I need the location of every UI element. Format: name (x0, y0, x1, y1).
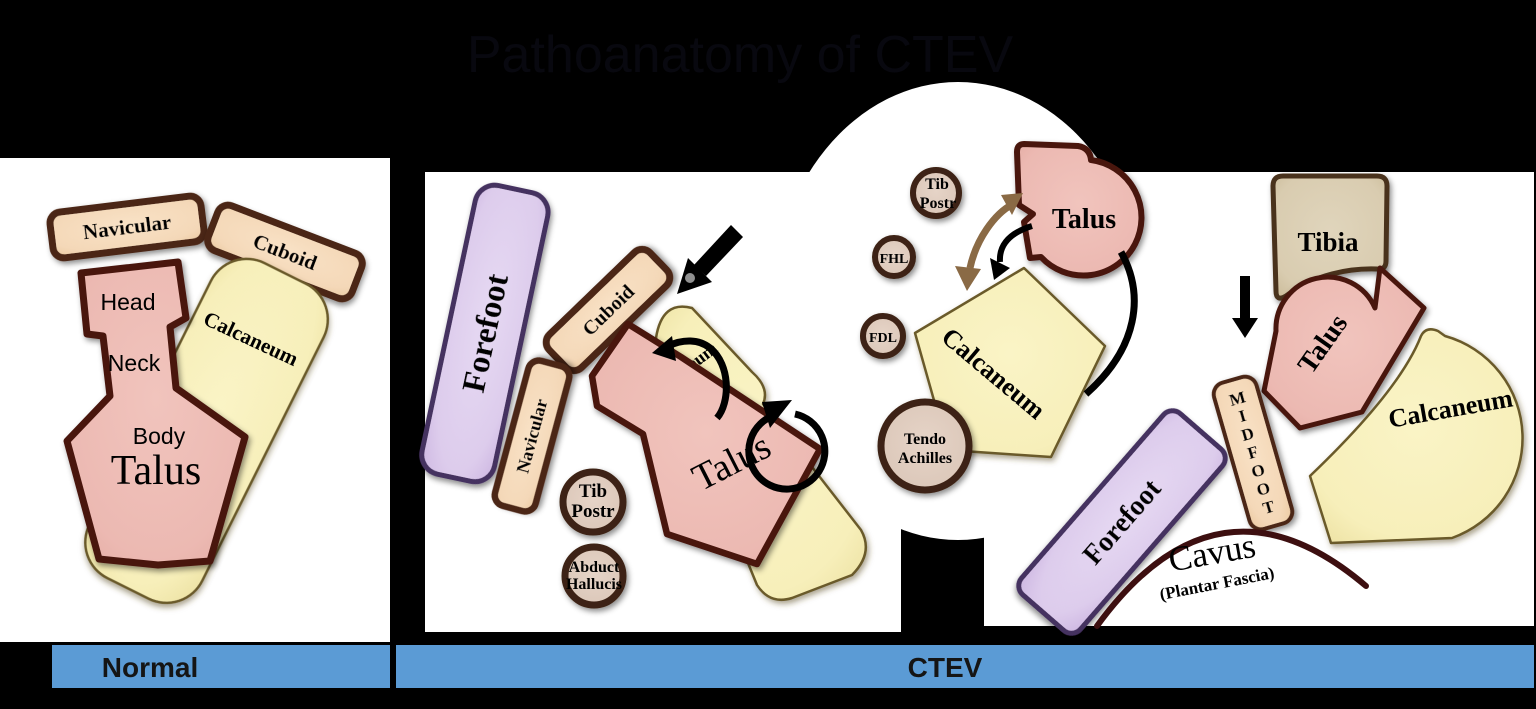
svg-text:Postr: Postr (920, 195, 956, 212)
svg-text:Tib: Tib (579, 481, 607, 502)
svg-text:Hallucis: Hallucis (566, 576, 622, 593)
svg-text:Tib: Tib (925, 176, 949, 193)
svg-text:Pathoanatomy of CTEV: Pathoanatomy of CTEV (467, 26, 1014, 84)
svg-text:Talus: Talus (1052, 204, 1116, 235)
svg-text:Neck: Neck (108, 350, 161, 376)
svg-text:Tendo: Tendo (904, 431, 946, 448)
svg-text:Normal: Normal (102, 652, 198, 683)
svg-text:FHL: FHL (880, 252, 909, 267)
svg-text:Head: Head (101, 289, 156, 315)
svg-text:Abduct: Abduct (569, 559, 620, 576)
svg-text:Postr: Postr (571, 501, 615, 522)
svg-text:Body: Body (133, 423, 186, 449)
svg-text:CTEV: CTEV (908, 652, 983, 683)
svg-text:FDL: FDL (869, 331, 897, 346)
svg-text:Achilles: Achilles (898, 450, 952, 467)
svg-text:Talus: Talus (111, 448, 201, 494)
svg-text:Tibia: Tibia (1297, 227, 1359, 257)
